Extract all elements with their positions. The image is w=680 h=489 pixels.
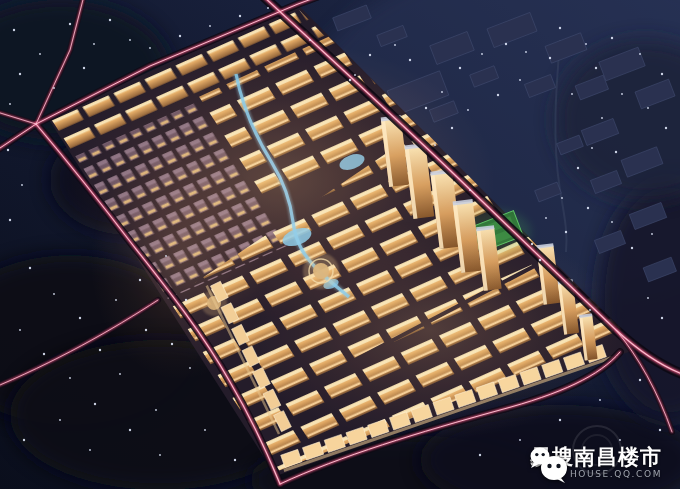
watermark-site: HOUSE.QQ.COM [570, 469, 662, 479]
wechat-icon [530, 446, 570, 484]
watermark: 易搜南昌楼市 HOUSE.QQ.COM [530, 446, 662, 479]
aerial-night-scene: 易搜南昌楼市 HOUSE.QQ.COM [0, 0, 680, 489]
scene-svg [0, 0, 680, 489]
